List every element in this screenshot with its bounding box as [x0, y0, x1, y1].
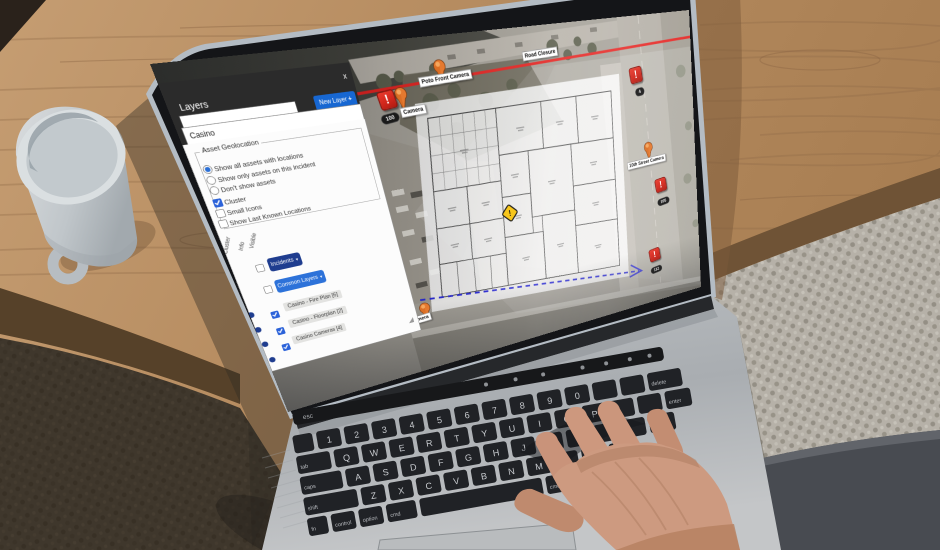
svg-text:X: X — [397, 485, 405, 496]
svg-text:enter: enter — [668, 398, 682, 406]
svg-text:caps: caps — [304, 484, 317, 492]
svg-text:W: W — [369, 447, 380, 458]
svg-text:Q: Q — [342, 452, 351, 463]
svg-text:M: M — [534, 461, 543, 472]
svg-text:R: R — [425, 438, 434, 449]
svg-text:D: D — [409, 462, 418, 473]
svg-text:S: S — [382, 467, 390, 478]
svg-text:Z: Z — [370, 490, 378, 501]
svg-text:cmd: cmd — [390, 511, 401, 519]
svg-text:esc: esc — [302, 412, 314, 421]
svg-text:4: 4 — [409, 420, 416, 431]
svg-text:delete: delete — [651, 379, 667, 388]
svg-text:F: F — [437, 457, 445, 468]
svg-text:cmd: cmd — [549, 483, 560, 491]
svg-text:T: T — [453, 433, 461, 444]
svg-text:7: 7 — [491, 405, 498, 416]
svg-text:option: option — [362, 515, 378, 524]
svg-text:O: O — [563, 413, 572, 424]
svg-text:control: control — [335, 520, 352, 529]
svg-text:0: 0 — [574, 390, 581, 401]
svg-text:U: U — [508, 423, 516, 434]
svg-text:C: C — [425, 480, 434, 491]
svg-text:L: L — [575, 433, 582, 444]
svg-text:E: E — [398, 443, 406, 454]
svg-text:Y: Y — [481, 428, 489, 439]
svg-text:5: 5 — [436, 415, 443, 426]
svg-text:P: P — [591, 409, 599, 420]
svg-text:B: B — [480, 471, 488, 482]
svg-text:shift: shift — [307, 505, 318, 513]
svg-text:G: G — [464, 452, 473, 463]
svg-text:2: 2 — [353, 429, 360, 440]
svg-text:fn: fn — [311, 526, 317, 533]
svg-text:8: 8 — [519, 400, 526, 411]
svg-text:V: V — [453, 476, 461, 487]
svg-text:3: 3 — [381, 425, 388, 436]
svg-text:tab: tab — [300, 464, 309, 471]
svg-text:N: N — [507, 466, 515, 477]
svg-text:J: J — [521, 443, 527, 454]
svg-text:H: H — [492, 447, 500, 458]
svg-text:return: return — [652, 422, 667, 430]
svg-text:A: A — [354, 472, 362, 483]
svg-text:K: K — [547, 438, 555, 449]
svg-text:6: 6 — [464, 410, 471, 421]
svg-text:1: 1 — [326, 434, 333, 445]
svg-text:9: 9 — [546, 395, 553, 406]
svg-text:I: I — [538, 419, 542, 429]
